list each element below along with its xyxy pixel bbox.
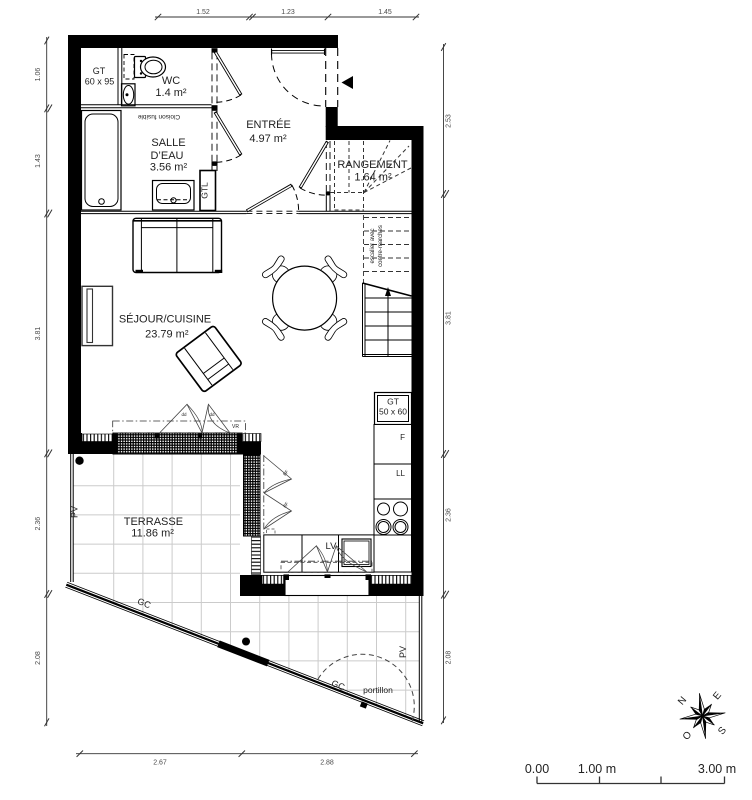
svg-text:1.00 m: 1.00 m xyxy=(578,762,616,776)
svg-text:Cloison fusible: Cloison fusible xyxy=(137,113,180,120)
svg-text:D’EAU: D’EAU xyxy=(150,150,183,162)
svg-text:VR: VR xyxy=(232,424,239,430)
svg-text:1.43: 1.43 xyxy=(35,154,42,168)
svg-text:23.79 m²: 23.79 m² xyxy=(145,329,189,341)
svg-text:2.88: 2.88 xyxy=(320,760,334,767)
svg-text:0.00: 0.00 xyxy=(525,762,549,776)
svg-text:3.81: 3.81 xyxy=(446,311,453,325)
svg-text:SALLE: SALLE xyxy=(151,137,185,149)
svg-text:1.4 m²: 1.4 m² xyxy=(155,87,187,99)
svg-text:TERRASSE: TERRASSE xyxy=(124,516,183,528)
svg-text:2.08: 2.08 xyxy=(446,651,453,665)
svg-text:portillon: portillon xyxy=(363,685,393,695)
svg-text:2.67: 2.67 xyxy=(153,760,167,767)
svg-text:GT: GT xyxy=(387,397,399,407)
svg-text:PV: PV xyxy=(70,506,80,518)
svg-text:3.00 m: 3.00 m xyxy=(698,762,736,776)
svg-text:RANGEMENT: RANGEMENT xyxy=(337,159,408,171)
svg-text:1.06: 1.06 xyxy=(35,68,42,82)
svg-text:escalier avec: escalier avec xyxy=(370,228,376,263)
svg-text:contre-marches: contre-marches xyxy=(378,225,384,267)
svg-text:3.56 m²: 3.56 m² xyxy=(150,162,188,174)
svg-text:1.52: 1.52 xyxy=(196,9,210,16)
svg-text:2.36: 2.36 xyxy=(446,508,453,522)
svg-text:GTL: GTL xyxy=(200,182,210,199)
svg-text:LL: LL xyxy=(396,469,405,478)
svg-text:11.86 m²: 11.86 m² xyxy=(131,528,174,540)
svg-text:LV: LV xyxy=(326,541,338,552)
svg-text:60 x 95: 60 x 95 xyxy=(85,77,115,87)
svg-text:2.08: 2.08 xyxy=(35,651,42,665)
svg-text:1.64 m²: 1.64 m² xyxy=(354,172,392,184)
svg-text:2.36: 2.36 xyxy=(35,517,42,531)
svg-text:1.23: 1.23 xyxy=(281,9,295,16)
svg-text:50 x 60: 50 x 60 xyxy=(379,407,407,417)
svg-text:4.97 m²: 4.97 m² xyxy=(249,133,287,145)
svg-text:2.53: 2.53 xyxy=(446,114,453,128)
svg-text:3.81: 3.81 xyxy=(35,327,42,341)
svg-text:dd: dd xyxy=(181,412,187,417)
svg-text:WC: WC xyxy=(162,75,180,87)
svg-text:SÉJOUR/CUISINE: SÉJOUR/CUISINE xyxy=(119,313,211,326)
svg-text:GT: GT xyxy=(93,66,106,76)
svg-text:dd: dd xyxy=(209,412,215,417)
svg-text:1.45: 1.45 xyxy=(378,9,392,16)
svg-text:PV: PV xyxy=(398,646,408,658)
svg-text:F: F xyxy=(400,433,405,442)
svg-text:ENTRÉE: ENTRÉE xyxy=(246,118,291,131)
